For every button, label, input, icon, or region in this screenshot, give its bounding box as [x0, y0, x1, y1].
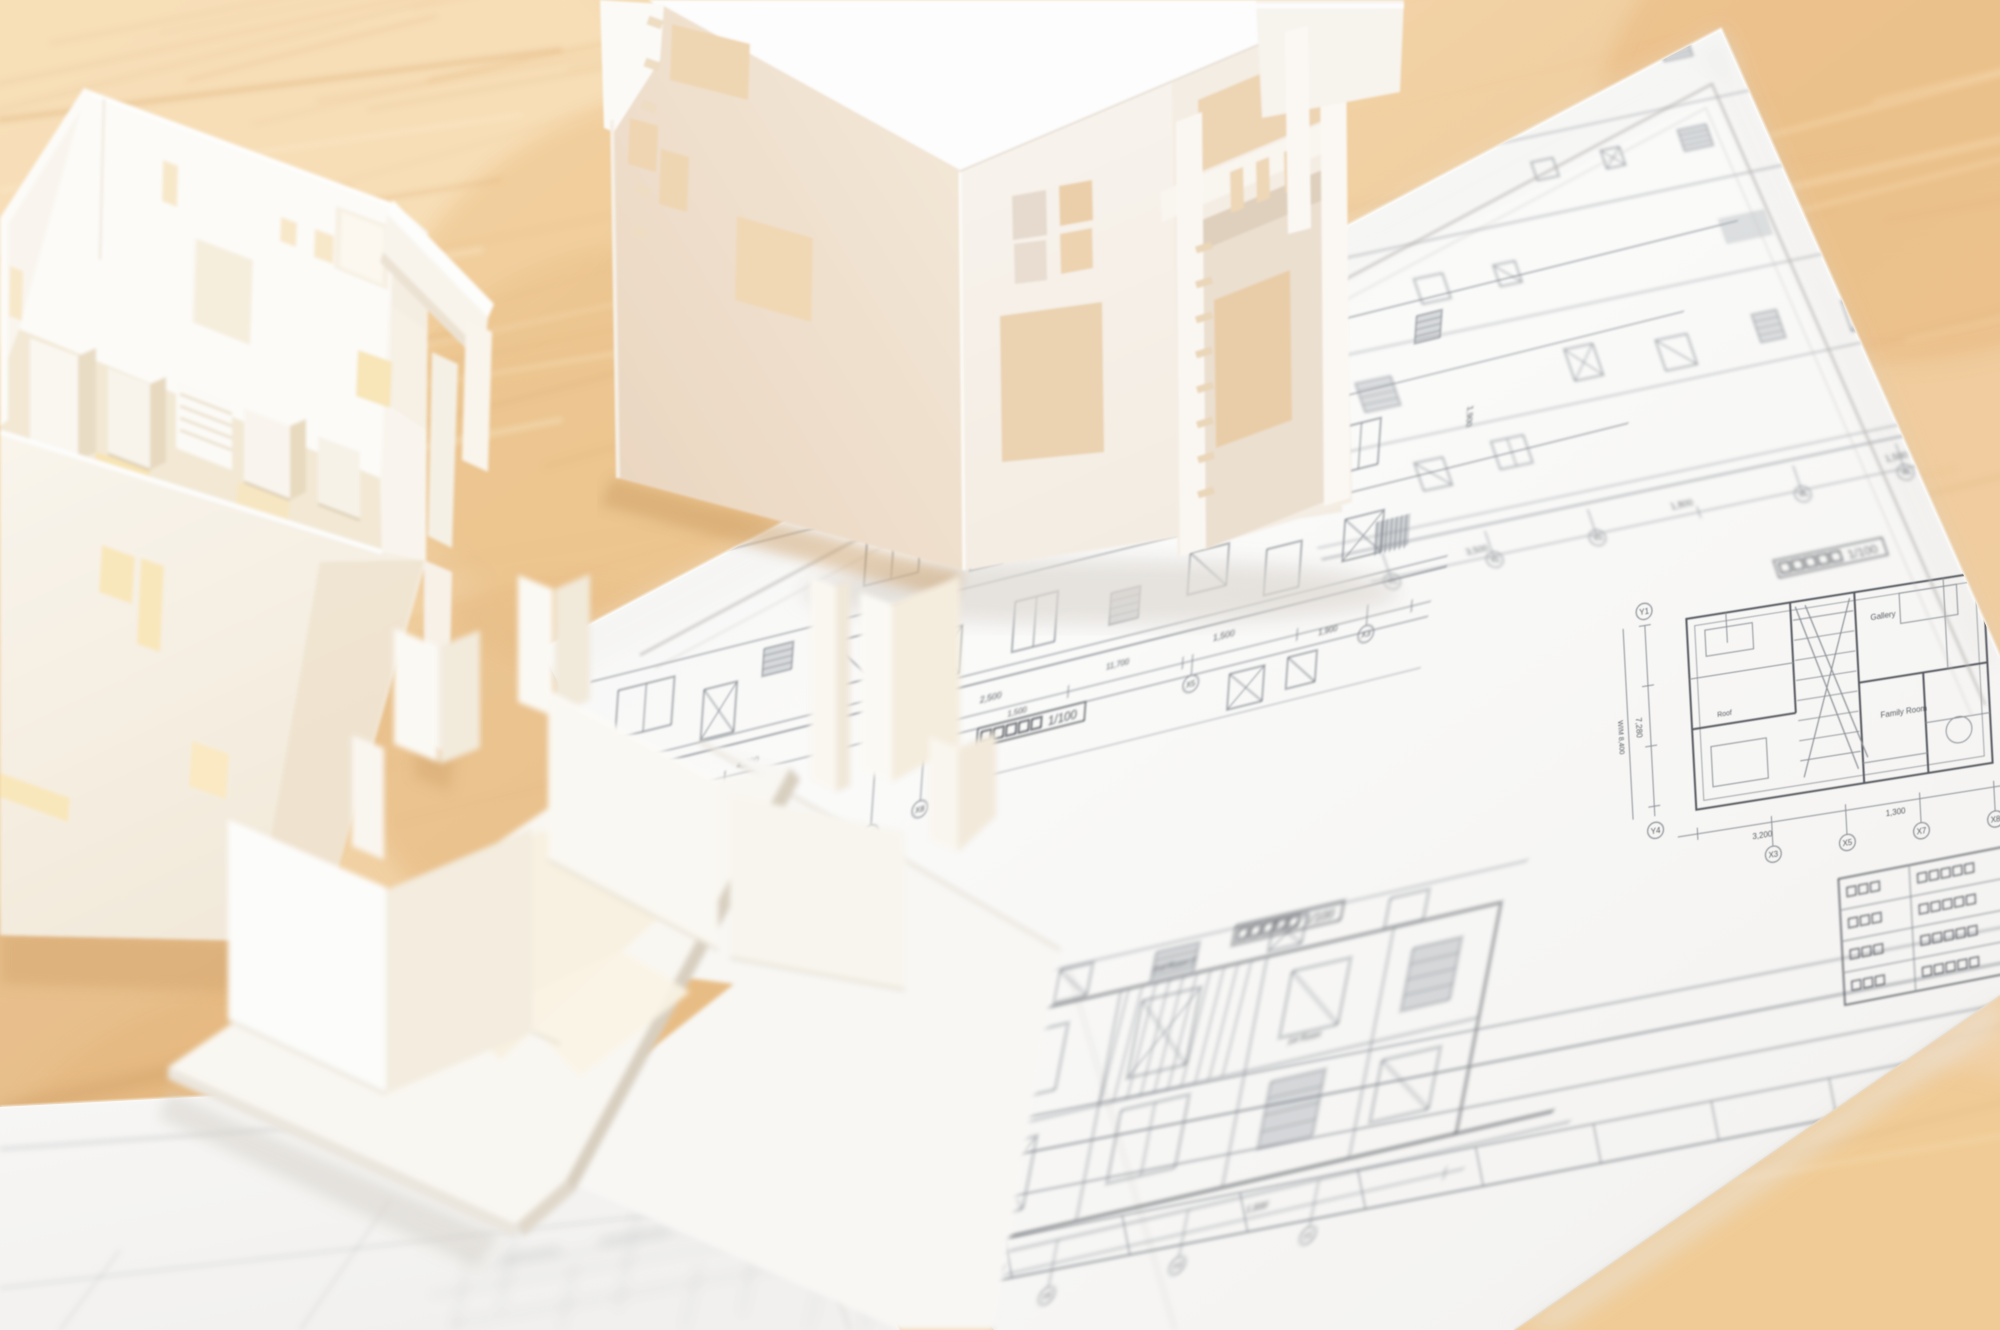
svg-text:X3: X3	[1768, 849, 1779, 860]
svg-text:X8: X8	[1991, 814, 2000, 825]
svg-text:Y1: Y1	[1639, 607, 1650, 618]
svg-text:Y4: Y4	[1651, 825, 1662, 836]
svg-text:7,280: 7,280	[1634, 717, 1644, 739]
svg-text:X7: X7	[1916, 826, 1927, 837]
svg-text:X5: X5	[1842, 838, 1853, 849]
